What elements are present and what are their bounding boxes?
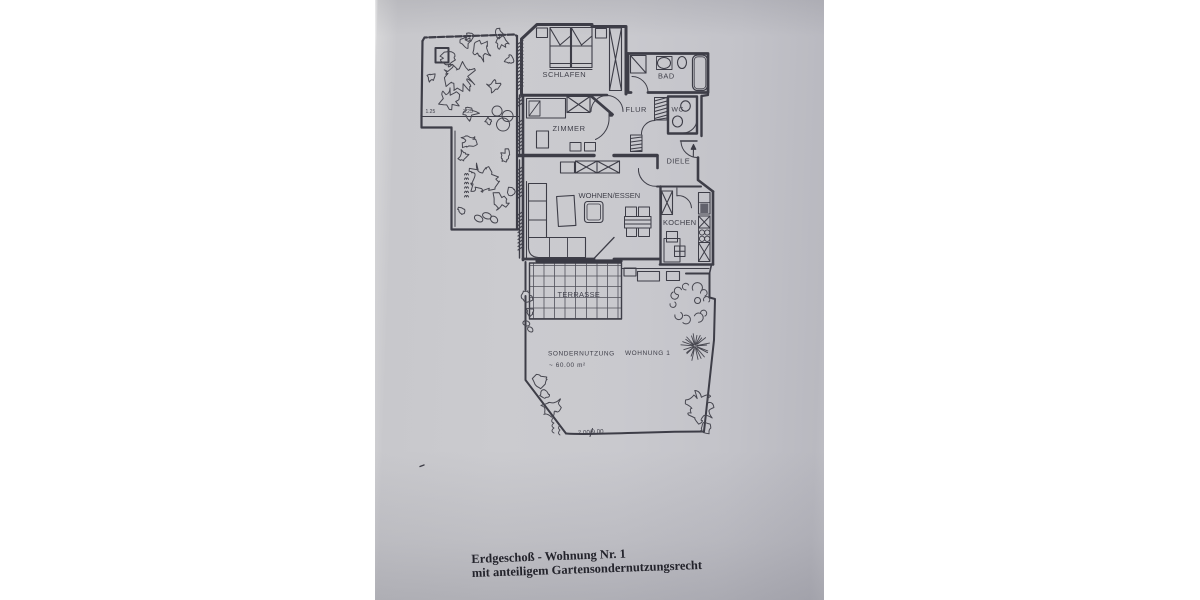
svg-text:~ 60.00 m²: ~ 60.00 m² <box>549 362 586 369</box>
svg-text:WC: WC <box>672 107 685 114</box>
svg-text:FLUR: FLUR <box>626 105 647 114</box>
svg-text:TERRASSE: TERRASSE <box>558 290 601 299</box>
svg-text:SONDERNUTZUNG: SONDERNUTZUNG <box>548 351 615 358</box>
svg-text:7.00/9.00: 7.00/9.00 <box>578 428 605 437</box>
svg-text:SCHLAFEN: SCHLAFEN <box>543 70 587 79</box>
svg-text:ZIMMER: ZIMMER <box>553 124 586 133</box>
svg-text:1.25: 1.25 <box>426 109 436 115</box>
svg-text:3.25: 3.25 <box>463 109 473 115</box>
svg-text:WOHNUNG 1: WOHNUNG 1 <box>625 350 670 357</box>
svg-text:BAD: BAD <box>658 72 675 81</box>
svg-text:WOHNEN/ESSEN: WOHNEN/ESSEN <box>579 191 641 200</box>
svg-text:KOCHEN: KOCHEN <box>663 218 696 227</box>
svg-text:DIELE: DIELE <box>667 157 691 166</box>
